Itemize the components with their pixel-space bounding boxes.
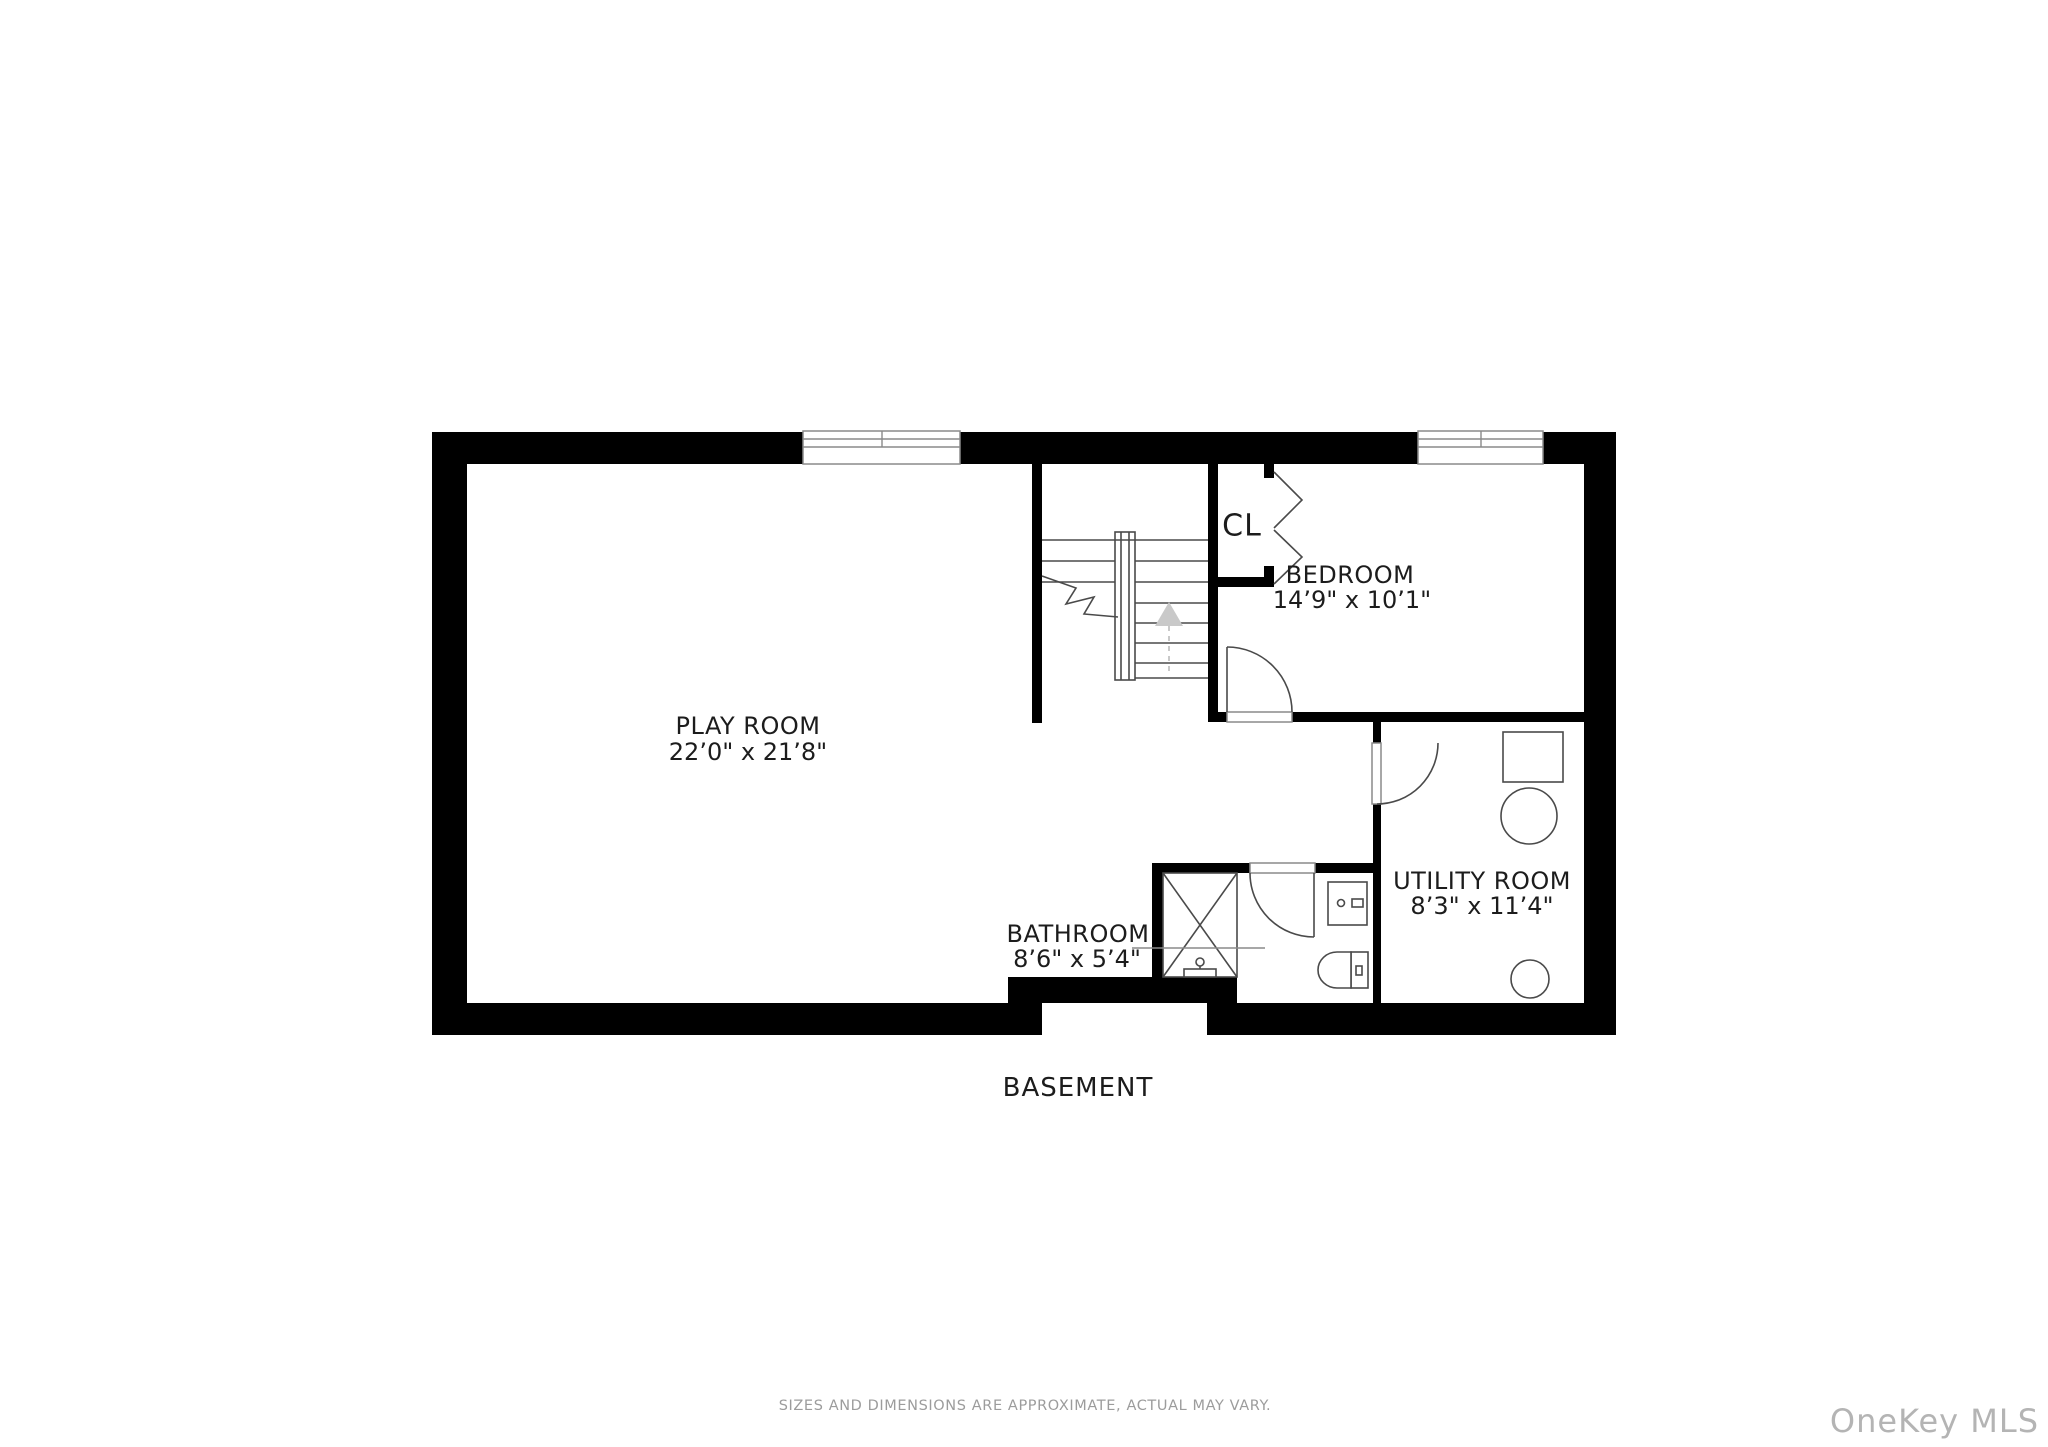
bathroom-door-icon <box>1250 863 1315 937</box>
shower-icon <box>1163 873 1237 977</box>
bedroom-dimensions: 14’9" x 10’1" <box>1273 586 1431 614</box>
bedroom-label: BEDROOM <box>1286 561 1415 589</box>
bathroom-dimensions: 8’6" x 5’4" <box>1013 945 1141 973</box>
floor-plan-drawing <box>0 0 2048 1447</box>
toilet-icon <box>1318 952 1368 988</box>
floor-title: BASEMENT <box>1003 1073 1154 1103</box>
closet-label: CL <box>1222 509 1262 544</box>
washer-icon <box>1503 732 1563 782</box>
utility-tank-icon <box>1501 788 1557 844</box>
disclaimer-text: SIZES AND DIMENSIONS ARE APPROXIMATE, AC… <box>779 1398 1272 1414</box>
play-room-label: PLAY ROOM <box>676 712 821 740</box>
play-room-dimensions: 22’0" x 21’8" <box>669 738 827 766</box>
floor-plan: PLAY ROOM 22’0" x 21’8" BEDROOM 14’9" x … <box>0 0 2048 1447</box>
utility-room-dimensions: 8’3" x 11’4" <box>1410 892 1553 920</box>
bathroom-label: BATHROOM <box>1007 920 1150 948</box>
stairs-up-icon <box>1042 532 1208 680</box>
onekey-mls-watermark: OneKey MLS <box>1830 1402 2039 1440</box>
window-icon <box>803 431 960 464</box>
bedroom-door-icon <box>1227 647 1292 722</box>
utility-room-label: UTILITY ROOM <box>1393 867 1571 895</box>
utility-drain-icon <box>1511 960 1549 998</box>
utility-door-icon <box>1372 743 1438 804</box>
sink-vanity-icon <box>1328 882 1367 925</box>
window-icon <box>1418 431 1543 464</box>
